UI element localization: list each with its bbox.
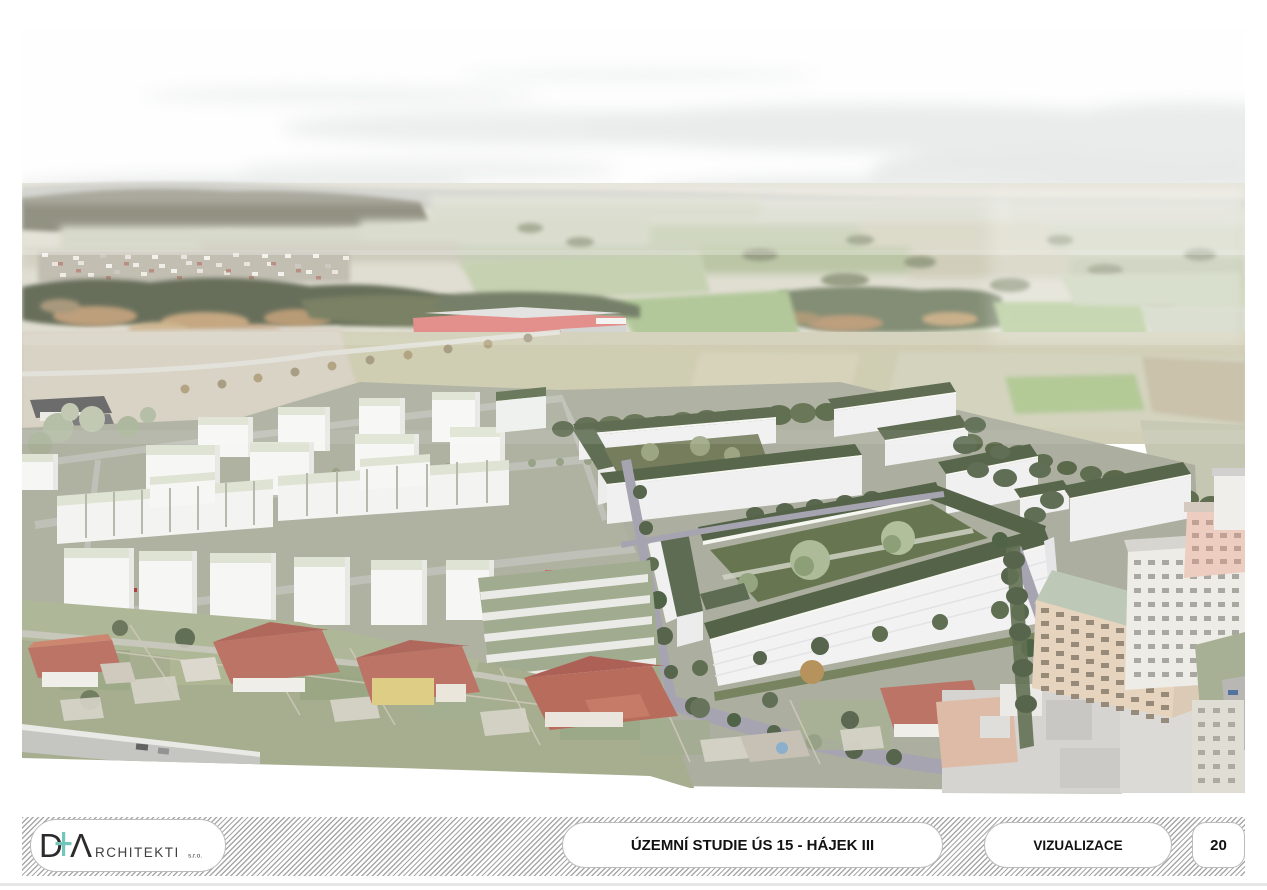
svg-text:RCHITEKTI: RCHITEKTI xyxy=(95,845,180,860)
svg-text:Λ: Λ xyxy=(70,827,92,864)
svg-text:D: D xyxy=(39,827,63,864)
svg-text:s.r.o.: s.r.o. xyxy=(188,852,202,859)
